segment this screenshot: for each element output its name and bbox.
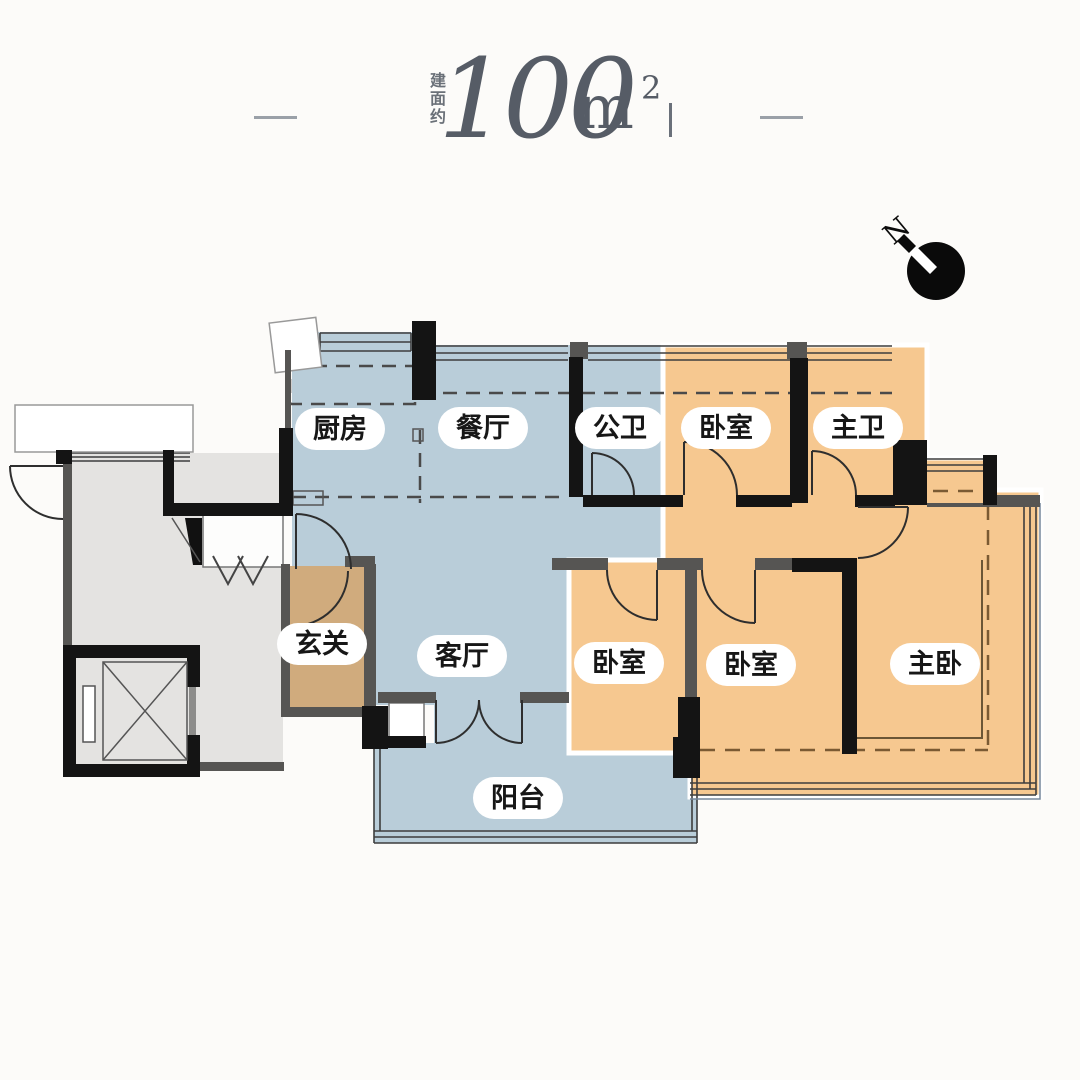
north-compass: N: [877, 210, 965, 300]
svg-text:主卫: 主卫: [831, 413, 885, 443]
svg-text:公卫: 公卫: [593, 413, 647, 443]
svg-text:卧室: 卧室: [592, 647, 646, 678]
label-kitchen: 厨房: [295, 408, 385, 450]
svg-text:玄关: 玄关: [295, 628, 349, 659]
svg-text:主卧: 主卧: [908, 649, 962, 679]
label-master-bath: 主卫: [813, 407, 903, 449]
svg-text:阳台: 阳台: [491, 782, 545, 813]
entry-canopy-outline: [15, 405, 193, 452]
kitchen-flue: [269, 317, 322, 372]
label-bedroom-west: 卧室: [574, 642, 664, 684]
svg-text:餐厅: 餐厅: [456, 413, 510, 443]
svg-text:厨房: 厨房: [313, 414, 367, 444]
label-master-bedroom: 主卧: [890, 643, 980, 685]
floorplan-drawing: 厨房 餐厅 公卫 卧室 主卫 玄关: [0, 0, 1080, 1080]
svg-text:卧室: 卧室: [724, 649, 778, 680]
svg-text:客厅: 客厅: [435, 640, 489, 671]
label-dining: 餐厅: [438, 407, 528, 449]
floorplan-page: 建面约 100 m 2: [0, 0, 1080, 1080]
elevator-counterweight: [83, 686, 95, 742]
label-bedroom-middle: 卧室: [706, 644, 796, 686]
elevator-door: [189, 687, 196, 735]
label-foyer: 玄关: [277, 623, 367, 665]
label-balcony: 阳台: [473, 777, 563, 819]
balcony-flue: [389, 703, 424, 737]
building-entry-door: [10, 466, 63, 519]
label-living: 客厅: [417, 635, 507, 677]
label-bedroom-north: 卧室: [681, 407, 771, 449]
label-public-bath: 公卫: [575, 407, 665, 449]
svg-text:卧室: 卧室: [699, 412, 753, 443]
